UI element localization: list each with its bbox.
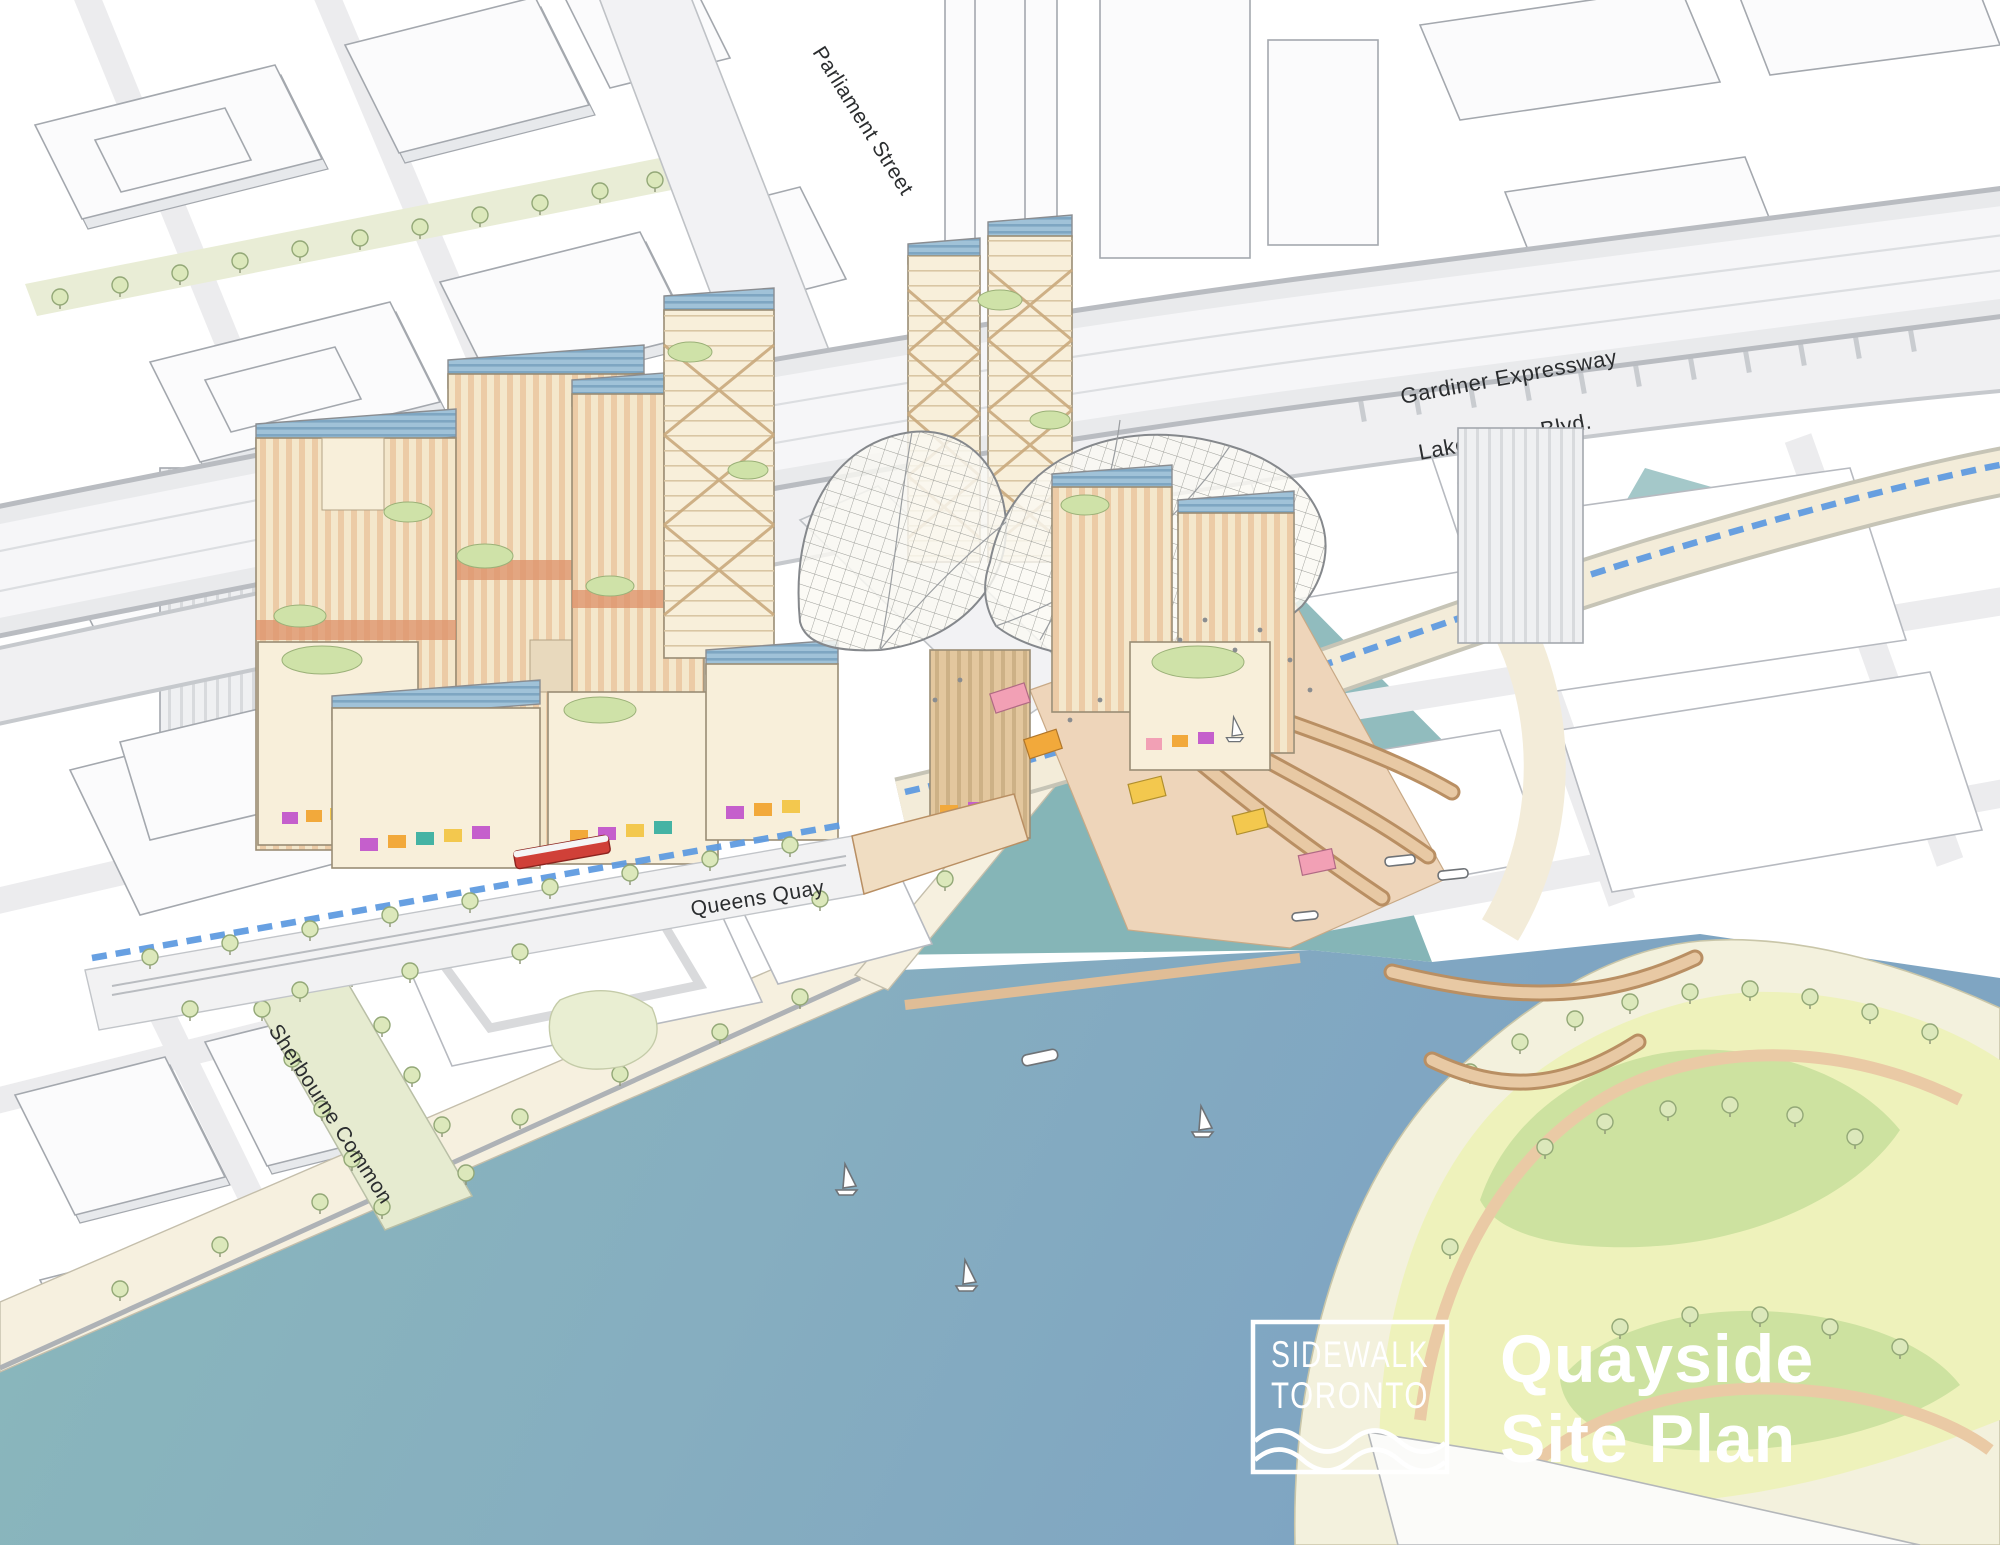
logo-line2: TORONTO (1271, 1375, 1429, 1416)
quayside-site-plan-illustration: Parliament Street Sherbourne Common (0, 0, 2000, 1545)
silo-slab (1458, 428, 1583, 643)
title-line1: Quayside (1500, 1321, 1814, 1397)
title-line2: Site Plan (1500, 1401, 1796, 1477)
logo-line1: SIDEWALK (1271, 1334, 1429, 1375)
site-plan-canvas: Parliament Street Sherbourne Common (0, 0, 2000, 1545)
timber-tower-front (664, 288, 774, 658)
pond (549, 991, 657, 1069)
